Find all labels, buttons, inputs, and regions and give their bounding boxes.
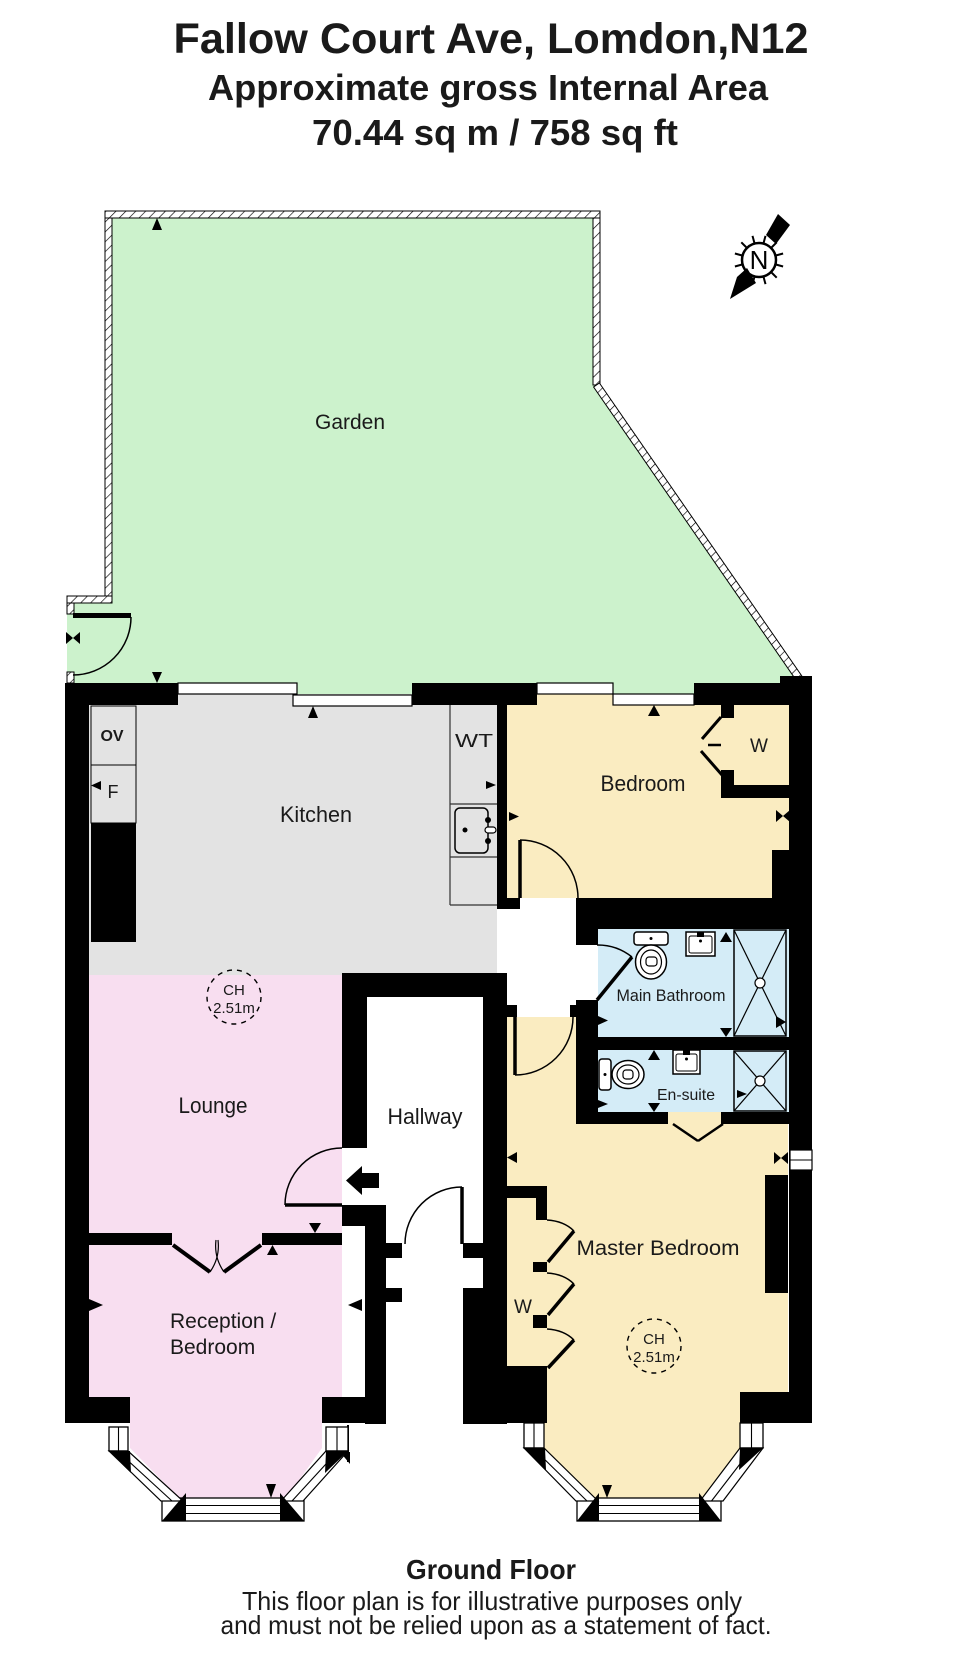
svg-text:Master Bedroom: Master Bedroom: [577, 1237, 740, 1260]
svg-text:Bedroom: Bedroom: [170, 1336, 255, 1359]
svg-text:Bedroom: Bedroom: [601, 771, 686, 796]
svg-text:WT: WT: [455, 731, 493, 751]
svg-text:Reception /: Reception /: [170, 1310, 276, 1333]
svg-text:Lounge: Lounge: [179, 1093, 248, 1118]
svg-text:Ground Floor: Ground Floor: [406, 1554, 576, 1585]
svg-text:Fallow Court Ave, Lomdon,N12: Fallow Court Ave, Lomdon,N12: [174, 15, 809, 63]
svg-text:Garden: Garden: [315, 411, 385, 434]
svg-text:Kitchen: Kitchen: [280, 802, 352, 827]
svg-text:F: F: [108, 782, 119, 802]
svg-text:Hallway: Hallway: [388, 1104, 463, 1129]
svg-text:CH: CH: [223, 982, 245, 999]
svg-text:En-suite: En-suite: [657, 1087, 715, 1104]
svg-text:and must not be relied upon as: and must not be relied upon as a stateme…: [221, 1610, 772, 1640]
svg-text:70.44 sq m / 758 sq ft: 70.44 sq m / 758 sq ft: [312, 112, 678, 153]
svg-text:W: W: [750, 736, 768, 757]
svg-text:Main Bathroom: Main Bathroom: [617, 986, 726, 1005]
svg-text:OV: OV: [100, 728, 123, 745]
svg-text:N: N: [750, 245, 769, 275]
svg-text:Approximate gross Internal Are: Approximate gross Internal Area: [208, 67, 769, 108]
svg-text:W: W: [514, 1297, 532, 1318]
svg-text:CH: CH: [643, 1331, 665, 1348]
svg-text:2.51m: 2.51m: [633, 1349, 675, 1366]
svg-text:2.51m: 2.51m: [213, 1000, 255, 1017]
